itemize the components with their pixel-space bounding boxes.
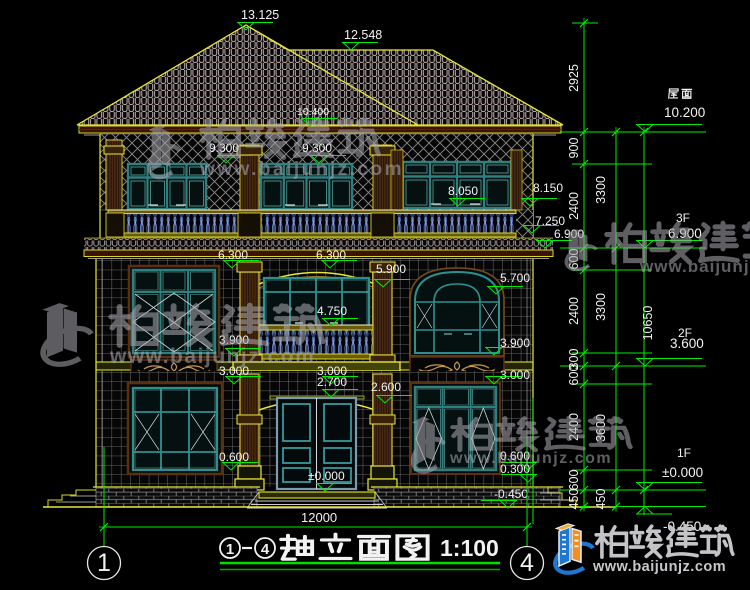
svg-text:450: 450 xyxy=(567,489,581,510)
svg-text:900: 900 xyxy=(567,138,581,159)
svg-text:1:100: 1:100 xyxy=(440,535,499,561)
svg-text:4: 4 xyxy=(261,541,270,558)
svg-text:3300: 3300 xyxy=(594,293,608,321)
svg-text:600: 600 xyxy=(567,470,581,491)
svg-text:450: 450 xyxy=(594,489,608,510)
svg-text:-0.450: -0.450 xyxy=(494,487,528,501)
svg-text:2F: 2F xyxy=(678,326,692,340)
svg-text:2.700: 2.700 xyxy=(317,375,347,389)
svg-text:www.baijunjz.com: www.baijunjz.com xyxy=(449,450,612,467)
svg-text:2400: 2400 xyxy=(567,192,581,220)
svg-text:1: 1 xyxy=(97,549,111,577)
svg-text:10.400: 10.400 xyxy=(297,106,329,118)
svg-text:1: 1 xyxy=(226,541,234,558)
svg-text:0.600: 0.600 xyxy=(219,450,249,464)
svg-text:www.baijunjz.com: www.baijunjz.com xyxy=(639,257,750,276)
svg-text:www.baijunjz.com: www.baijunjz.com xyxy=(109,345,315,368)
svg-text:6.300: 6.300 xyxy=(218,248,248,262)
svg-text:2925: 2925 xyxy=(567,64,581,92)
svg-text:3.000: 3.000 xyxy=(500,368,530,382)
svg-text:2.600: 2.600 xyxy=(371,380,401,394)
svg-text:4: 4 xyxy=(520,549,534,577)
svg-text:12000: 12000 xyxy=(301,510,337,525)
svg-text:10650: 10650 xyxy=(641,306,655,341)
svg-text:±0.000: ±0.000 xyxy=(308,469,345,483)
svg-text:2400: 2400 xyxy=(567,297,581,325)
svg-text:www.baijunjz.com: www.baijunjz.com xyxy=(199,159,404,180)
svg-text:3300: 3300 xyxy=(594,176,608,204)
svg-text:1F: 1F xyxy=(677,446,691,460)
svg-text:4.750: 4.750 xyxy=(317,304,347,318)
svg-text:7.250: 7.250 xyxy=(535,214,565,228)
svg-text:12.548: 12.548 xyxy=(344,28,382,42)
svg-text:www.baijunjz.com: www.baijunjz.com xyxy=(592,559,726,575)
svg-text:10.200: 10.200 xyxy=(664,105,705,120)
svg-text:3.900: 3.900 xyxy=(500,336,530,350)
svg-text:8.150: 8.150 xyxy=(533,181,563,195)
svg-text:600: 600 xyxy=(567,365,581,386)
svg-text:6.300: 6.300 xyxy=(316,248,346,262)
svg-text:±0.000: ±0.000 xyxy=(662,465,703,480)
svg-text:13.125: 13.125 xyxy=(241,8,279,22)
svg-text:5.900: 5.900 xyxy=(376,262,406,276)
svg-text:5.700: 5.700 xyxy=(500,271,530,285)
svg-text:8.050: 8.050 xyxy=(448,184,478,198)
